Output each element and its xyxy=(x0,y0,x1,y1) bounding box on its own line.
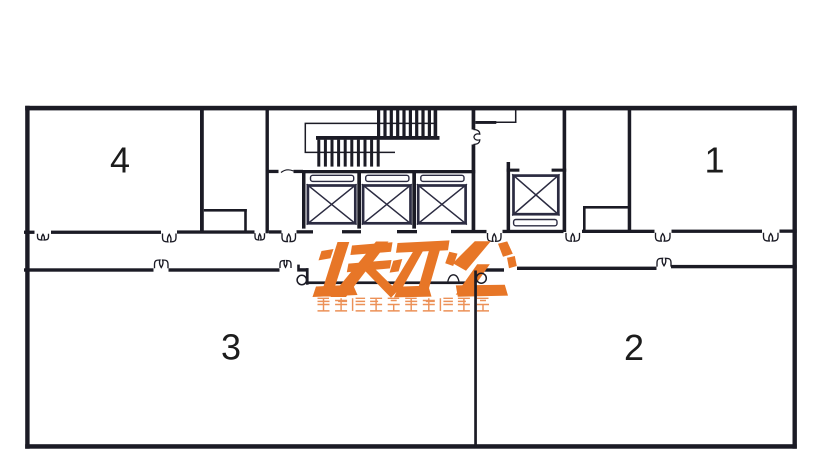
svg-text:2: 2 xyxy=(624,327,644,368)
svg-text:4: 4 xyxy=(110,140,130,181)
svg-text:3: 3 xyxy=(221,327,241,368)
svg-text:1: 1 xyxy=(704,140,724,181)
